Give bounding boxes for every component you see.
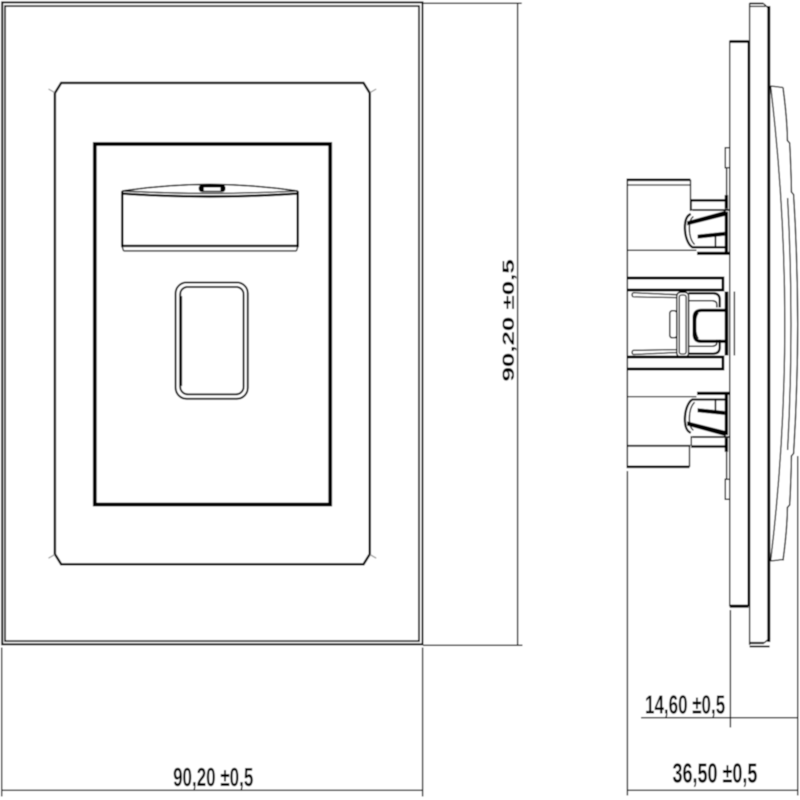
svg-text:90,20 ±0,5: 90,20 ±0,5 [173,762,253,792]
svg-text:36,50 ±0,5: 36,50 ±0,5 [673,757,758,788]
svg-text:14,60 ±0,5: 14,60 ±0,5 [645,690,725,720]
svg-text:90,20 ±0,5: 90,20 ±0,5 [498,259,517,381]
